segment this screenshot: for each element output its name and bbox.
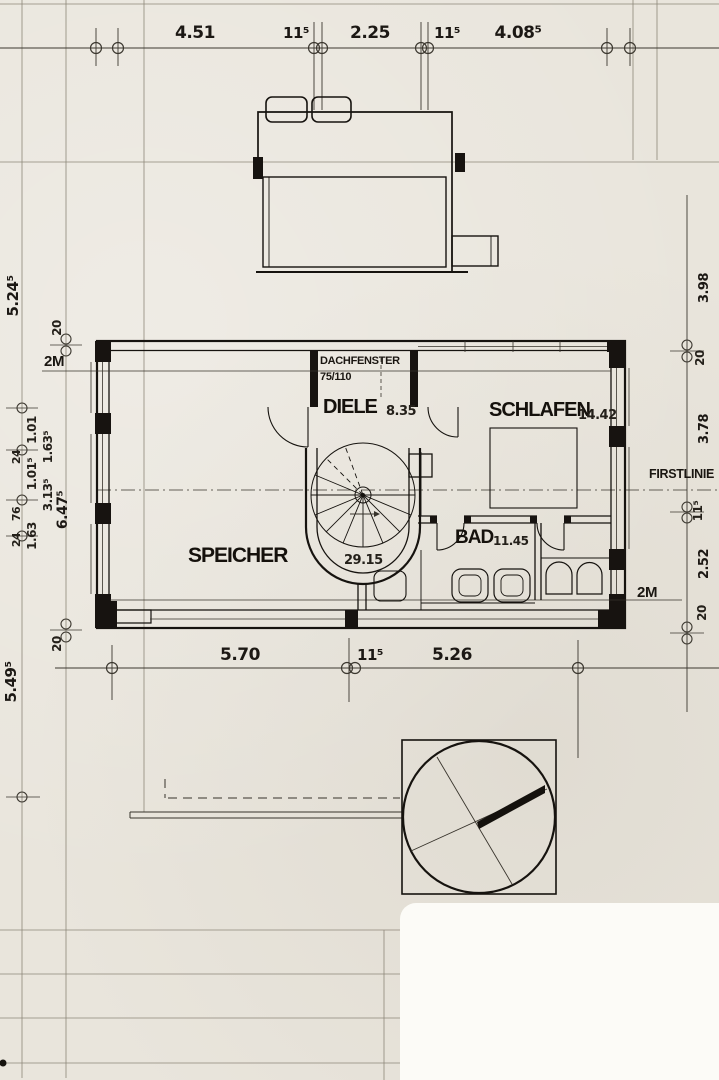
blank-patch bbox=[400, 903, 719, 1080]
left-dimension-chain bbox=[6, 334, 82, 802]
dim-left-163: 1.63 bbox=[25, 522, 39, 550]
sink bbox=[494, 569, 530, 602]
turntable-circle bbox=[402, 740, 556, 894]
dim-bottom-3: 5.26 bbox=[432, 645, 472, 665]
dim-right-20a: 20 bbox=[693, 350, 707, 366]
turntable-connections bbox=[130, 779, 402, 818]
toilet bbox=[546, 562, 572, 594]
room-area-diele: 8.35 bbox=[386, 404, 417, 419]
dim-left-6475: 6.47⁵ bbox=[55, 491, 71, 530]
dim-bottom-1: 5.70 bbox=[220, 645, 261, 665]
sink bbox=[452, 569, 488, 602]
ink-dot bbox=[0, 1060, 7, 1067]
door-speicher bbox=[268, 407, 308, 447]
dim-left-20-bottom: 20 bbox=[50, 636, 64, 652]
dim-top-3: 2.25 bbox=[350, 23, 390, 43]
skylight bbox=[312, 97, 351, 122]
dim-bottom-2: 11⁵ bbox=[357, 646, 383, 664]
room-area-speicher: 29.15 bbox=[344, 553, 383, 568]
grid-lines-bottom bbox=[0, 930, 400, 1063]
bottom-left-step bbox=[117, 610, 151, 623]
floor-plan bbox=[42, 341, 682, 628]
window-lines bbox=[91, 341, 629, 619]
bath-wall-stubs bbox=[430, 516, 571, 523]
dim-right-398: 3.98 bbox=[697, 273, 712, 304]
dim-right-252: 2.52 bbox=[697, 549, 712, 579]
dachfenster-size-label: 75/110 bbox=[320, 371, 351, 383]
stair-treads bbox=[311, 475, 415, 547]
dormer-room bbox=[263, 177, 446, 267]
dim-top-1: 4.51 bbox=[175, 23, 215, 43]
dim-left-3135: 3.13⁵ bbox=[41, 479, 55, 512]
dim-top-4: 11⁵ bbox=[434, 24, 460, 42]
floor-plan-drawing: 4.51 11⁵ 2.25 11⁵ 4.08⁵ 5.70 11⁵ 5.26 5.… bbox=[0, 0, 719, 1080]
floor-plan-sheet: 4.51 11⁵ 2.25 11⁵ 4.08⁵ 5.70 11⁵ 5.26 5.… bbox=[0, 0, 719, 1080]
two-meter-label-right: 2M bbox=[637, 584, 657, 601]
turntable-pointer bbox=[477, 785, 545, 829]
dim-left-76: 76 bbox=[10, 506, 23, 521]
firstlinie-label: FIRSTLINIE bbox=[649, 467, 714, 481]
dim-left-1015: 1.01⁵ bbox=[25, 458, 39, 491]
dim-left-5245: 5.24⁵ bbox=[4, 275, 22, 316]
room-area-bad: 11.45 bbox=[493, 534, 529, 548]
dim-right-20b: 20 bbox=[695, 605, 709, 621]
bed bbox=[490, 428, 577, 508]
wall-stub bbox=[455, 153, 465, 172]
two-meter-label-left: 2M bbox=[44, 353, 64, 370]
room-label-speicher: SPEICHER bbox=[188, 544, 288, 567]
bidet bbox=[577, 563, 602, 595]
room-label-schlafen: SCHLAFEN bbox=[489, 399, 590, 421]
bottom-dimension-line bbox=[55, 638, 719, 758]
room-area-schlafen: 14.42 bbox=[578, 408, 617, 423]
dim-left-1635: 1.63⁵ bbox=[41, 431, 55, 464]
dim-left-101: 1.01 bbox=[25, 416, 39, 444]
room-label-bad: BAD bbox=[455, 527, 493, 548]
bathroom-fixtures bbox=[374, 562, 602, 602]
dim-top-5: 4.08⁵ bbox=[495, 23, 542, 43]
wall-stub bbox=[253, 157, 263, 179]
dim-left-5495: 5.49⁵ bbox=[2, 661, 20, 702]
dim-left-20-top: 20 bbox=[50, 320, 64, 336]
room-label-diele: DIELE bbox=[323, 396, 378, 418]
door-schlafen bbox=[428, 407, 458, 437]
right-dimension-chain bbox=[670, 195, 704, 712]
dachfenster-label: DACHFENSTER bbox=[320, 355, 400, 367]
grid-lines-right bbox=[633, 0, 657, 160]
dormer-outline bbox=[253, 97, 498, 272]
shower bbox=[374, 571, 406, 601]
dim-left-24a: 24 bbox=[10, 449, 23, 464]
dim-right-115: 11⁵ bbox=[691, 501, 705, 522]
dim-right-378: 3.78 bbox=[697, 414, 712, 445]
dim-left-24b: 24 bbox=[10, 532, 23, 547]
skylight bbox=[266, 97, 307, 122]
dim-top-2: 11⁵ bbox=[283, 24, 309, 42]
turntable-ring bbox=[403, 741, 555, 893]
